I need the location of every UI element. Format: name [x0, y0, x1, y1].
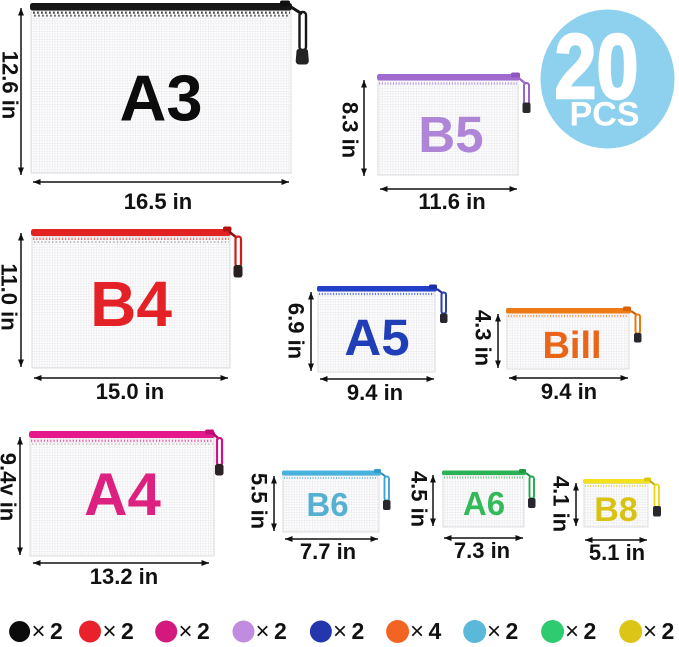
svg-text:9.4v in: 9.4v in	[0, 453, 21, 521]
svg-text:Bill: Bill	[542, 325, 601, 367]
svg-text:B8: B8	[594, 491, 637, 529]
svg-text:5.5 in: 5.5 in	[247, 473, 272, 529]
svg-text:9.4 in: 9.4 in	[347, 380, 403, 405]
svg-text:PCS: PCS	[570, 96, 640, 134]
svg-text:11.0 in: 11.0 in	[0, 263, 22, 330]
svg-text:4.3 in: 4.3 in	[471, 310, 496, 366]
svg-text:A4: A4	[84, 461, 161, 528]
svg-text:7.7 in: 7.7 in	[300, 539, 356, 564]
svg-text:7.3 in: 7.3 in	[454, 538, 510, 563]
svg-text:4.5 in: 4.5 in	[407, 471, 432, 527]
svg-text:A6: A6	[463, 485, 505, 522]
svg-text:B5: B5	[418, 106, 483, 163]
svg-text:A3: A3	[119, 62, 202, 135]
svg-text:16.5 in: 16.5 in	[124, 189, 192, 214]
svg-text:A5: A5	[344, 309, 409, 366]
svg-text:B4: B4	[90, 268, 172, 340]
svg-text:15.0 in: 15.0 in	[96, 379, 164, 404]
svg-text:12.6 in: 12.6 in	[0, 51, 23, 119]
svg-text:9.4 in: 9.4 in	[541, 379, 597, 404]
svg-text:13.2 in: 13.2 in	[90, 564, 158, 589]
svg-text:11.6 in: 11.6 in	[418, 189, 485, 214]
svg-text:8.3 in: 8.3 in	[338, 102, 363, 158]
svg-text:B6: B6	[306, 486, 348, 523]
svg-text:4.1 in: 4.1 in	[549, 476, 574, 532]
svg-text:5.1 in: 5.1 in	[589, 540, 645, 565]
svg-text:6.9 in: 6.9 in	[284, 303, 309, 359]
